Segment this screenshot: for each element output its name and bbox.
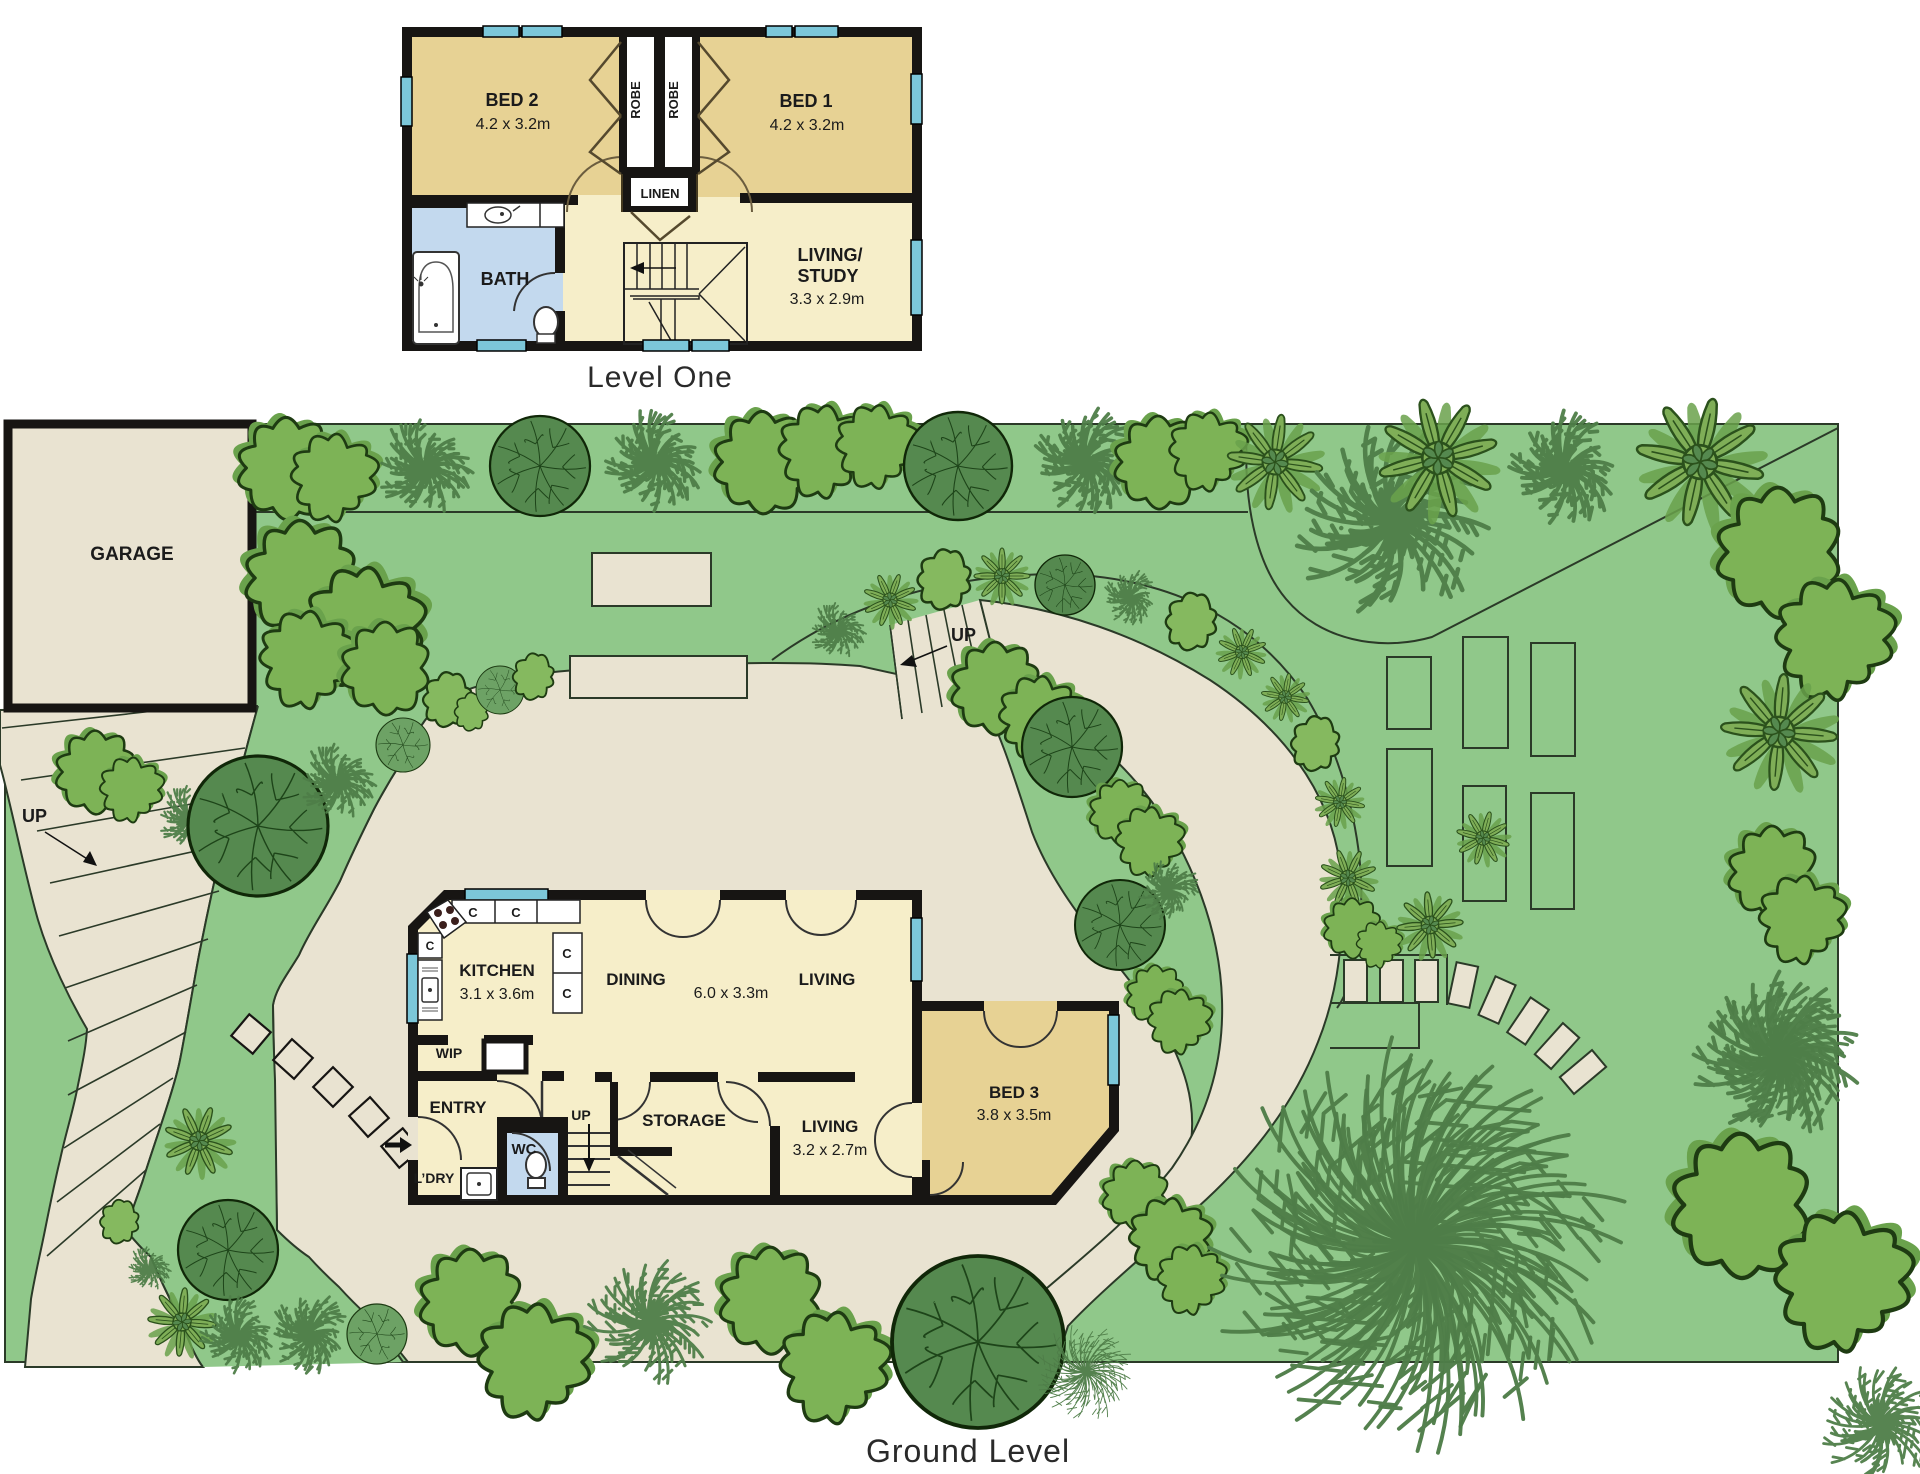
svg-text:UP: UP bbox=[571, 1107, 590, 1123]
svg-text:3.8 x 3.5m: 3.8 x 3.5m bbox=[977, 1107, 1052, 1124]
svg-text:STUDY: STUDY bbox=[797, 266, 858, 286]
svg-text:C: C bbox=[511, 905, 521, 920]
svg-text:ROBE: ROBE bbox=[666, 81, 681, 119]
svg-text:4.2 x 3.2m: 4.2 x 3.2m bbox=[770, 117, 845, 134]
svg-text:WIP: WIP bbox=[436, 1045, 462, 1061]
svg-text:4.2 x 3.2m: 4.2 x 3.2m bbox=[476, 116, 551, 133]
svg-text:UP: UP bbox=[22, 806, 47, 826]
svg-text:LINEN: LINEN bbox=[641, 186, 680, 201]
svg-text:C: C bbox=[426, 939, 435, 953]
svg-text:LIVING: LIVING bbox=[799, 970, 856, 989]
svg-text:STORAGE: STORAGE bbox=[642, 1111, 726, 1130]
svg-text:LIVING: LIVING bbox=[802, 1117, 859, 1136]
svg-text:3.3 x 2.9m: 3.3 x 2.9m bbox=[790, 291, 865, 308]
svg-text:C: C bbox=[468, 905, 478, 920]
svg-text:C: C bbox=[562, 946, 572, 961]
svg-text:C: C bbox=[562, 986, 572, 1001]
svg-text:UP: UP bbox=[951, 625, 976, 645]
svg-text:GARAGE: GARAGE bbox=[90, 544, 173, 565]
svg-text:Level One: Level One bbox=[587, 361, 733, 394]
svg-text:3.2 x 2.7m: 3.2 x 2.7m bbox=[793, 1142, 868, 1159]
svg-text:LIVING/: LIVING/ bbox=[797, 245, 862, 265]
svg-text:WC: WC bbox=[512, 1141, 537, 1158]
svg-text:6.0 x 3.3m: 6.0 x 3.3m bbox=[694, 985, 769, 1002]
svg-text:L’DRY: L’DRY bbox=[414, 1170, 455, 1186]
svg-text:KITCHEN: KITCHEN bbox=[459, 961, 535, 980]
svg-text:ENTRY: ENTRY bbox=[430, 1098, 488, 1117]
svg-text:3.1 x 3.6m: 3.1 x 3.6m bbox=[460, 986, 535, 1003]
svg-text:ROBE: ROBE bbox=[628, 81, 643, 119]
svg-text:BED 1: BED 1 bbox=[779, 91, 832, 111]
svg-text:DINING: DINING bbox=[606, 970, 666, 989]
svg-text:BATH: BATH bbox=[481, 269, 530, 289]
svg-text:BED 3: BED 3 bbox=[989, 1083, 1039, 1102]
svg-text:Ground Level: Ground Level bbox=[866, 1433, 1070, 1469]
svg-text:BED 2: BED 2 bbox=[485, 90, 538, 110]
